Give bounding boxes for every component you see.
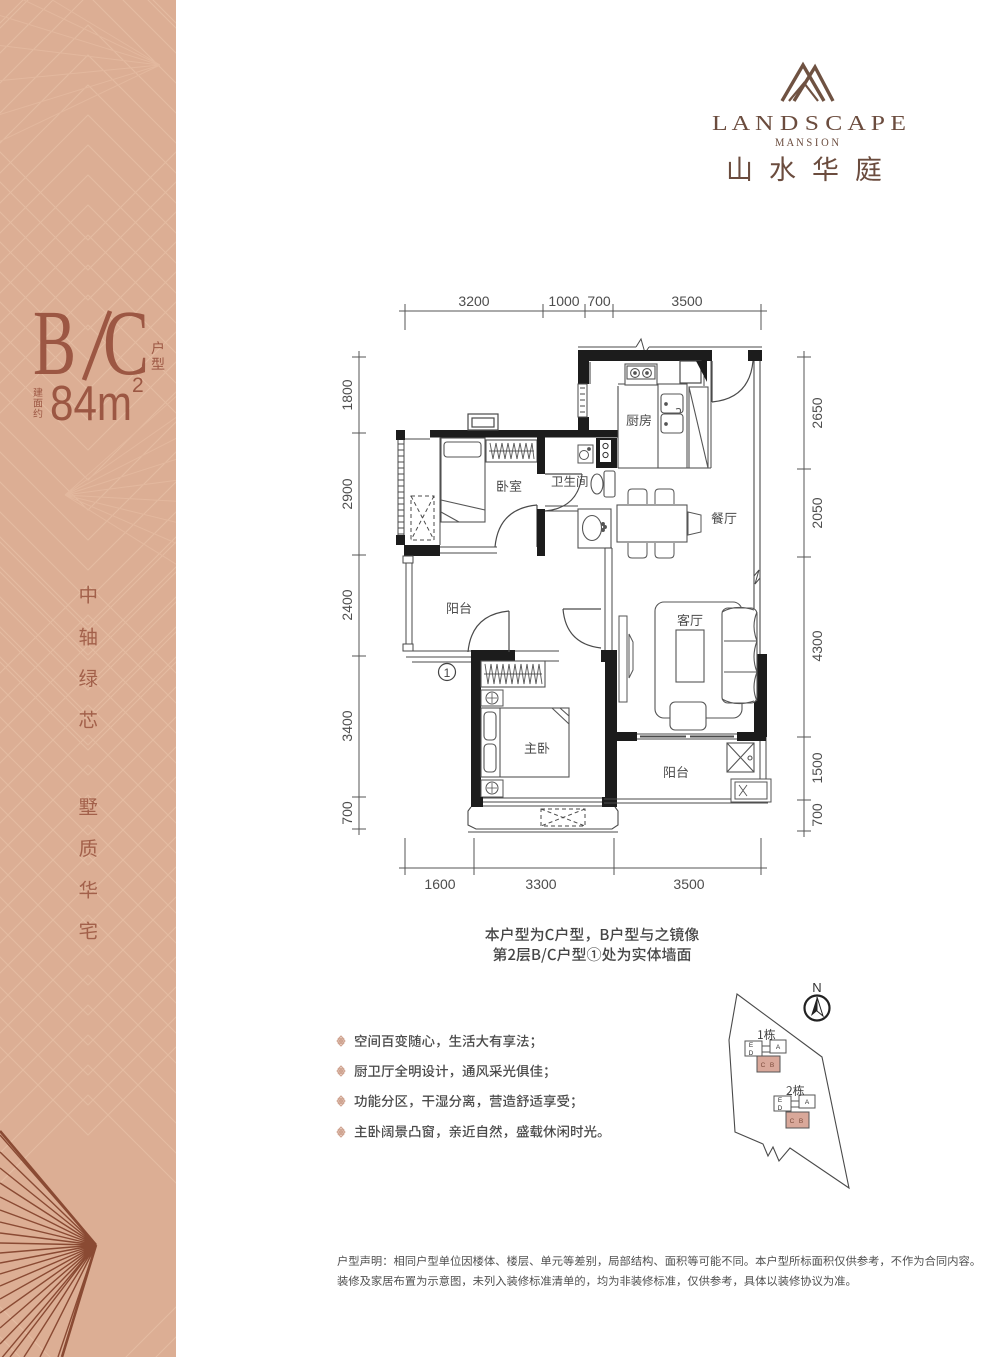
svg-text:1500: 1500 [809,752,825,783]
svg-text:N: N [812,980,821,995]
svg-text:700: 700 [587,293,611,309]
svg-text:4300: 4300 [809,630,825,661]
svg-text:84m: 84m [50,377,132,431]
svg-text:700: 700 [339,801,355,825]
svg-text:700: 700 [809,803,825,827]
svg-text:2: 2 [132,374,144,397]
svg-text:A: A [776,1044,781,1051]
svg-text:3500: 3500 [673,876,704,892]
svg-text:1600: 1600 [424,876,455,892]
svg-text:C: C [761,1062,766,1069]
svg-text:A: A [805,1099,810,1106]
svg-text:2050: 2050 [809,497,825,528]
svg-text:3200: 3200 [458,293,489,309]
svg-text:M A N S I O N: M A N S I O N [775,135,839,149]
svg-text:2400: 2400 [339,589,355,620]
svg-text:D: D [749,1050,754,1057]
svg-text:C: C [790,1118,795,1125]
svg-text:3400: 3400 [339,710,355,741]
svg-text:E: E [749,1042,754,1049]
svg-text:1800: 1800 [339,379,355,410]
svg-text:B: B [770,1062,774,1069]
svg-text:1000: 1000 [548,293,579,309]
svg-text:2900: 2900 [339,478,355,509]
svg-text:B: B [799,1118,803,1125]
svg-text:D: D [778,1105,783,1112]
svg-text:E: E [778,1097,783,1104]
svg-text:1: 1 [444,666,451,680]
svg-text:2650: 2650 [809,397,825,428]
svg-text:3500: 3500 [671,293,702,309]
svg-text:3300: 3300 [525,876,556,892]
svg-text:L A N D S C A P E: L A N D S C A P E [712,111,906,135]
